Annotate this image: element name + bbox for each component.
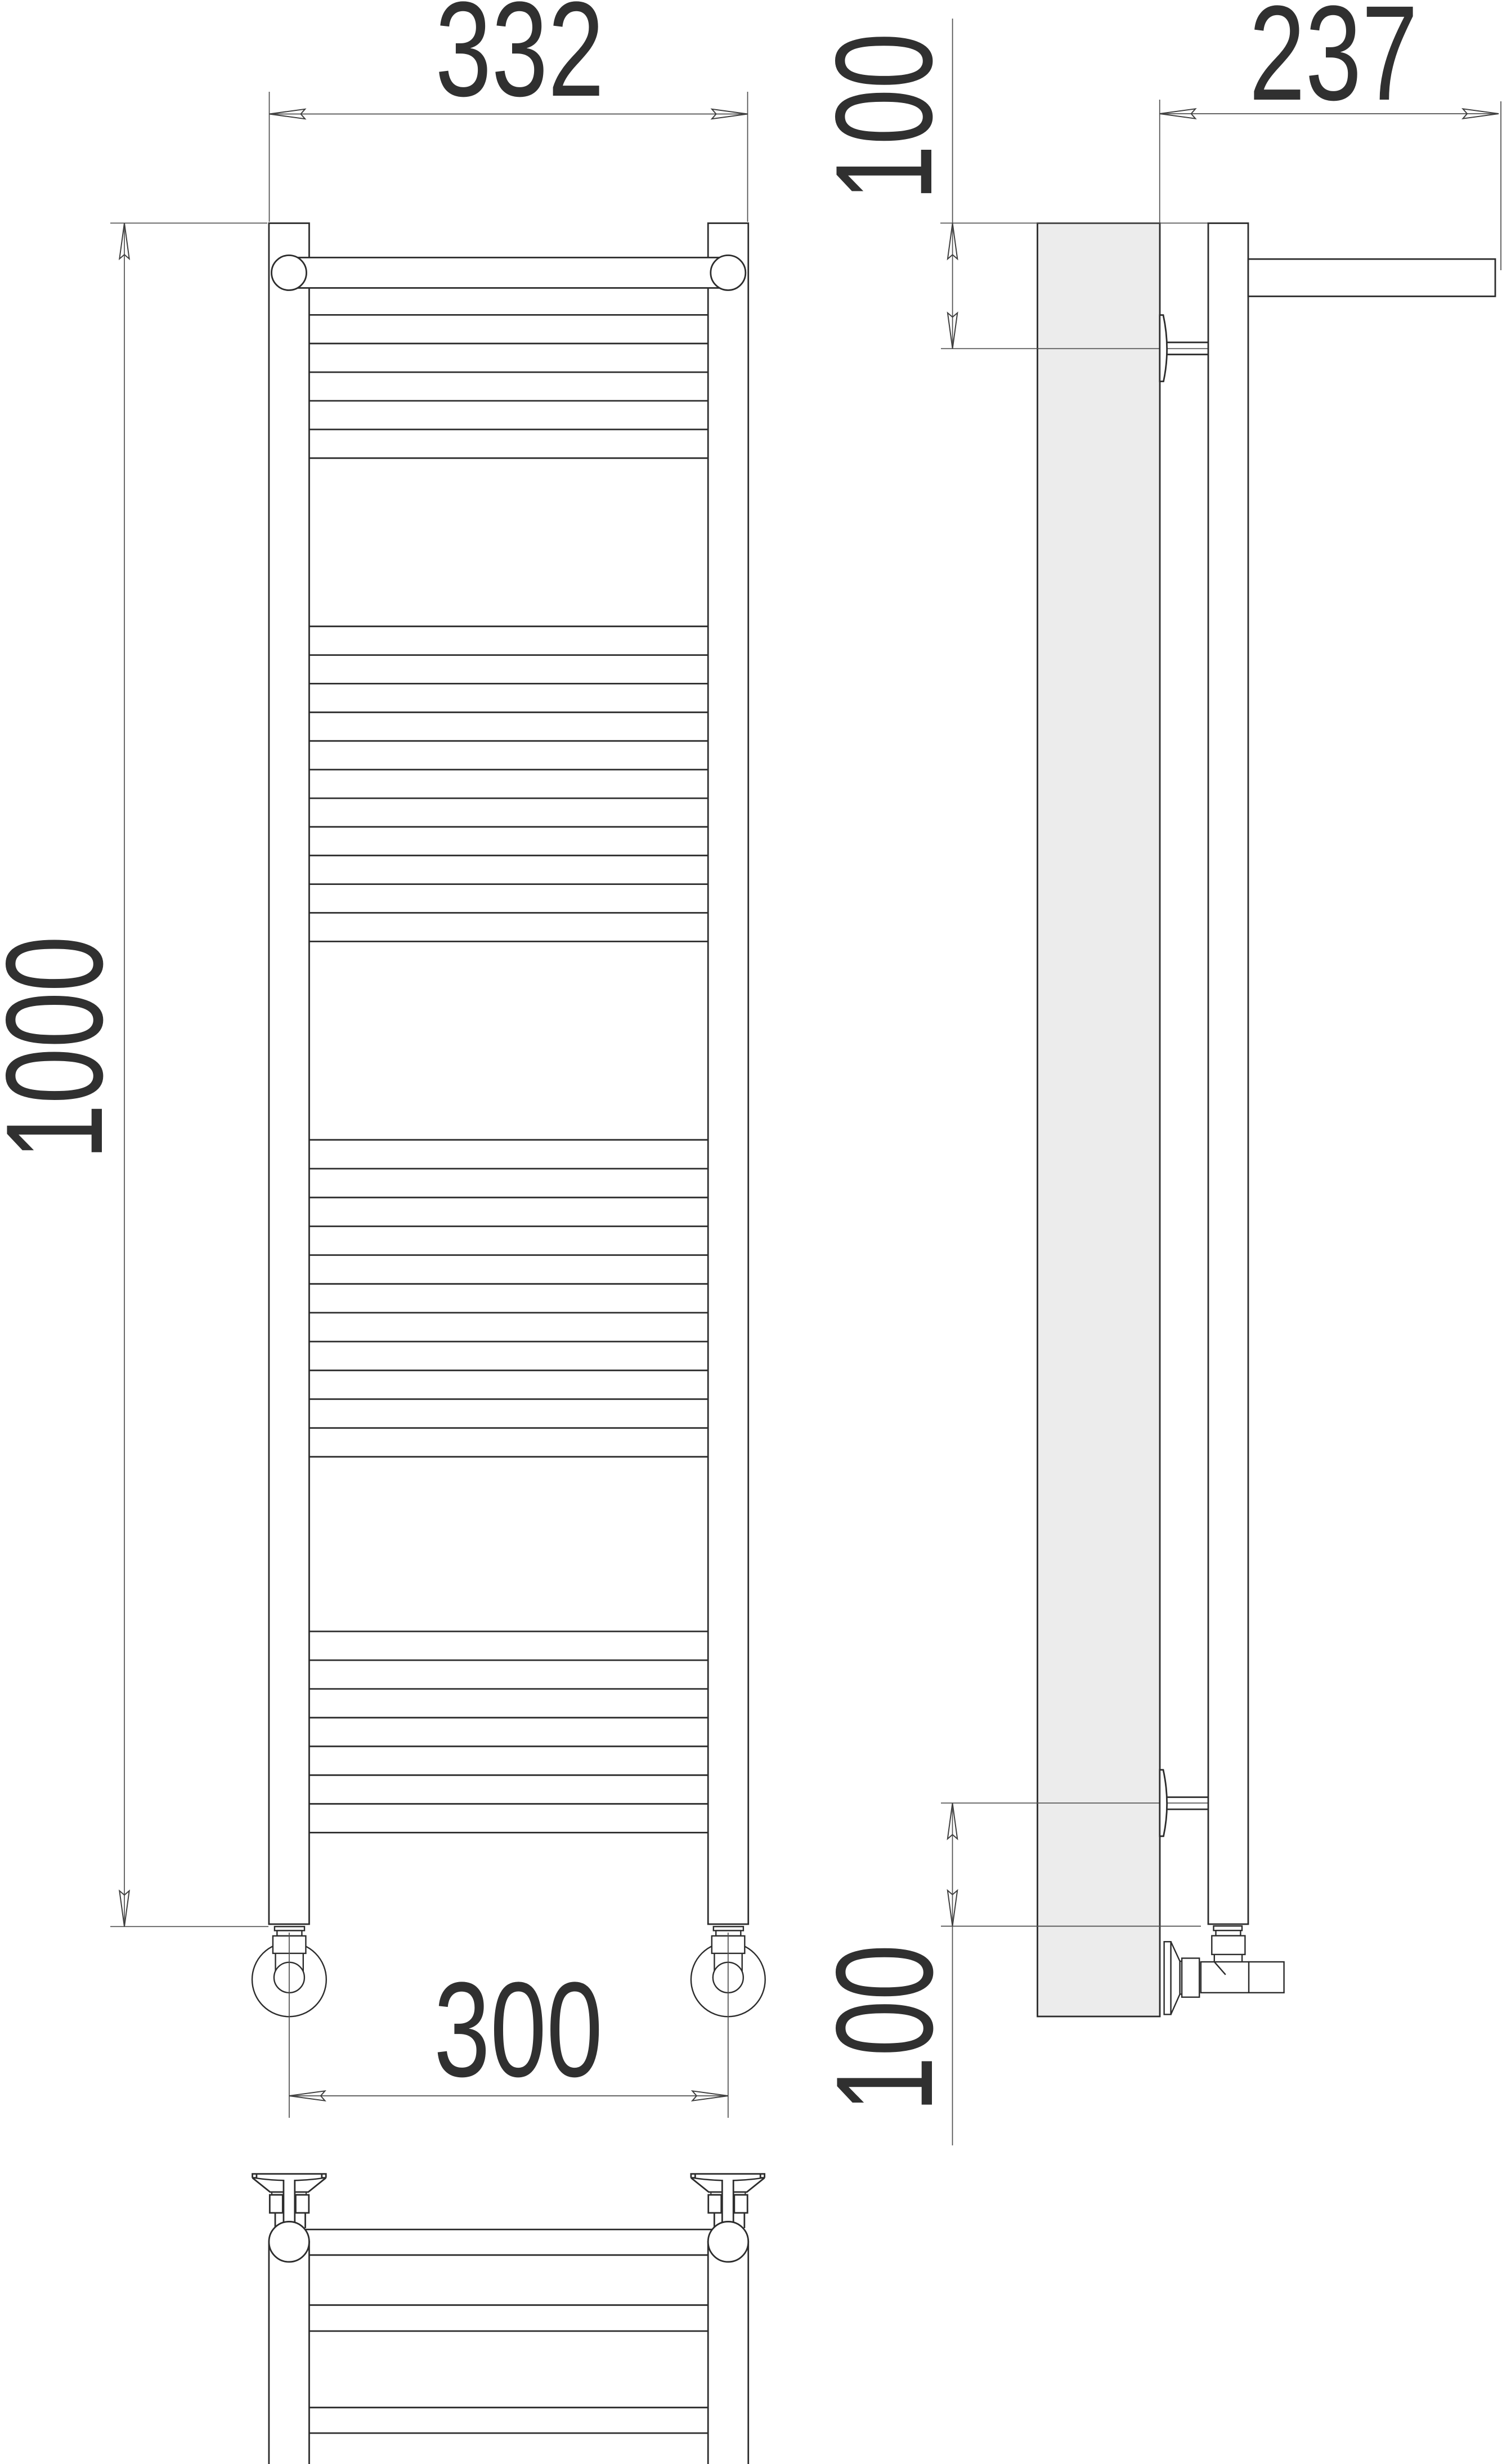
svg-text:100: 100 (808, 1944, 962, 2112)
svg-text:332: 332 (435, 0, 604, 124)
svg-text:237: 237 (1249, 0, 1418, 128)
svg-text:100: 100 (808, 33, 961, 200)
svg-text:1000: 1000 (0, 936, 132, 1160)
svg-text:300: 300 (434, 1954, 603, 2105)
